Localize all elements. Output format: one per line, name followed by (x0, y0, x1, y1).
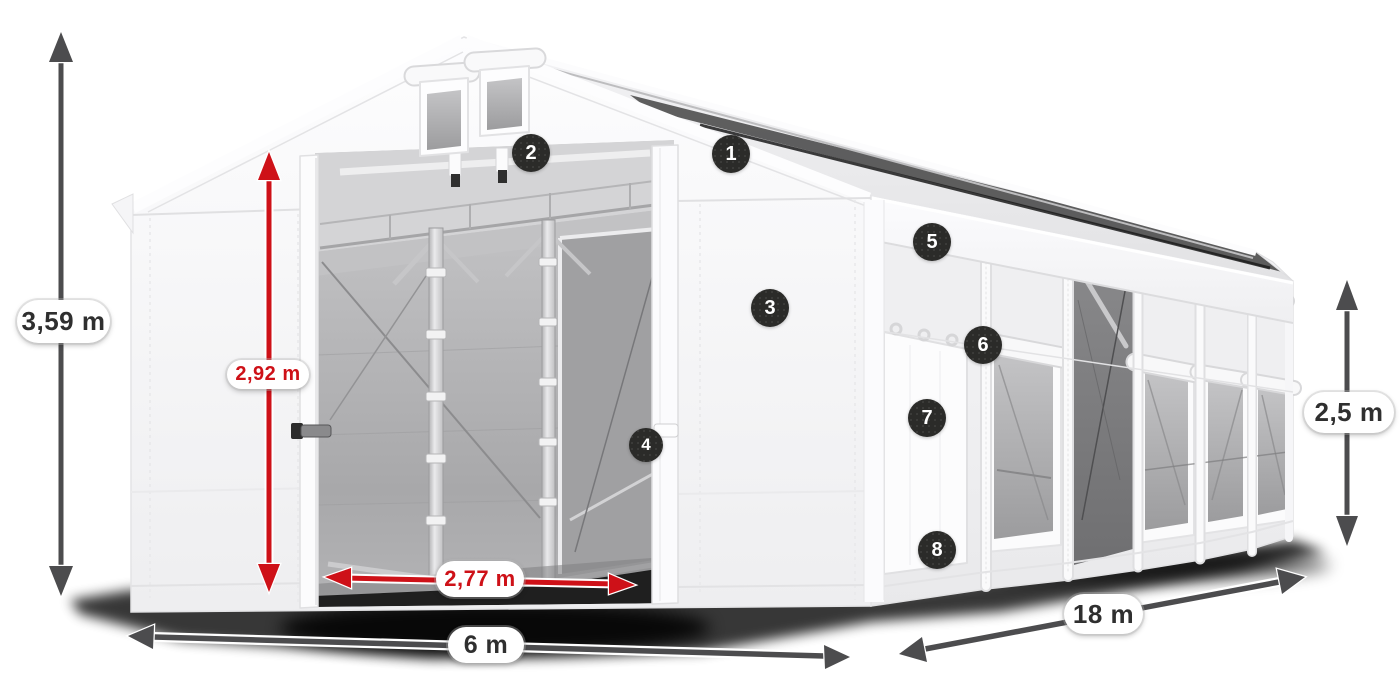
dimension-label-length: 18 m (1064, 594, 1143, 634)
gable-window-left (414, 72, 470, 156)
door-handle-left (291, 423, 331, 439)
callout-badge-2[interactable]: 2 (512, 134, 550, 172)
callout-badge-8[interactable]: 8 (918, 531, 956, 569)
callout-badge-5[interactable]: 5 (913, 223, 951, 261)
eave-flap (112, 194, 133, 233)
dimension-label-width: 6 m (448, 627, 524, 663)
dimension-label-side-height: 2,5 m (1304, 392, 1394, 433)
callout-badge-1[interactable]: 1 (712, 135, 750, 173)
side-window-bay2 (982, 338, 1065, 552)
callout-badge-4[interactable]: 4 (629, 428, 663, 462)
side-windows-far (1135, 358, 1294, 543)
callout-badge-7[interactable]: 7 (908, 399, 946, 437)
side-door-opening (1067, 246, 1136, 566)
callout-badge-6[interactable]: 6 (964, 326, 1002, 364)
front-opening-interior (315, 140, 677, 607)
callout-badge-3[interactable]: 3 (751, 289, 789, 327)
tent-svg (0, 0, 1400, 700)
tent-dimensions-illustration: 3,59 m 2,92 m 2,77 m 6 m 18 m 2,5 m 1 2 … (0, 0, 1400, 700)
gable-window-right (474, 58, 536, 136)
dimension-label-entrance-height: 2,92 m (227, 360, 309, 389)
dimension-label-entrance-width: 2,77 m (436, 561, 524, 597)
dimension-label-total-height: 3,59 m (17, 300, 110, 343)
